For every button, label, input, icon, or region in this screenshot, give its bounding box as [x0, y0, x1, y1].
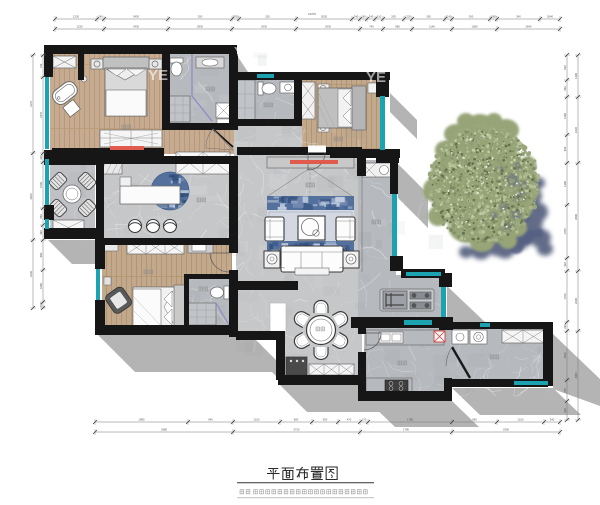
svg-text:195: 195 [426, 15, 431, 19]
svg-text:2960: 2960 [574, 372, 578, 378]
svg-text:1080: 1080 [472, 25, 478, 29]
svg-text:1010: 1010 [254, 418, 260, 422]
svg-text:740: 740 [39, 63, 43, 68]
svg-text:240: 240 [516, 15, 521, 19]
svg-text:560: 560 [39, 214, 43, 219]
svg-text:2820: 2820 [29, 193, 33, 199]
svg-text:YE: YE [366, 69, 386, 86]
svg-text:490: 490 [39, 230, 43, 235]
svg-text:1280: 1280 [563, 113, 567, 119]
svg-text:1140: 1140 [446, 15, 452, 19]
svg-text:3590: 3590 [574, 214, 578, 220]
svg-text:1230: 1230 [77, 25, 83, 29]
svg-text:1390: 1390 [563, 181, 567, 187]
svg-text:200: 200 [39, 302, 43, 307]
svg-text:240: 240 [369, 15, 374, 19]
svg-text:2030: 2030 [321, 15, 327, 19]
svg-text:1220: 1220 [405, 15, 411, 19]
svg-text:3430: 3430 [133, 25, 139, 29]
svg-text:2640: 2640 [526, 25, 532, 29]
svg-text:1080: 1080 [491, 15, 497, 19]
svg-text:1780: 1780 [407, 418, 413, 422]
svg-text:2300: 2300 [503, 428, 509, 432]
svg-text:2000: 2000 [574, 298, 578, 304]
svg-text:1700: 1700 [563, 293, 567, 299]
svg-text:2030: 2030 [261, 25, 267, 29]
svg-text:2830: 2830 [233, 15, 239, 19]
svg-text:960: 960 [472, 418, 477, 422]
svg-text:3170: 3170 [29, 101, 33, 107]
svg-text:290: 290 [563, 324, 567, 329]
svg-text:2470: 2470 [39, 112, 43, 118]
svg-text:830: 830 [563, 65, 567, 70]
svg-text:740: 740 [369, 25, 374, 29]
svg-text:1140: 1140 [429, 25, 435, 29]
svg-text:200: 200 [198, 15, 203, 19]
svg-text:2030: 2030 [325, 25, 331, 29]
svg-text:680: 680 [294, 418, 299, 422]
svg-text:560: 560 [563, 86, 567, 91]
svg-text:21370: 21370 [308, 12, 316, 16]
svg-text:205: 205 [391, 15, 396, 19]
svg-text:940: 940 [563, 146, 567, 151]
svg-text:1780: 1780 [403, 428, 409, 432]
svg-text:2230: 2230 [29, 271, 33, 277]
svg-text:1390: 1390 [574, 73, 578, 79]
svg-text:980: 980 [395, 25, 400, 29]
svg-text:240: 240 [98, 15, 103, 19]
svg-text:630: 630 [563, 408, 567, 413]
svg-text:1980: 1980 [139, 418, 145, 422]
svg-text:YE: YE [148, 67, 168, 84]
svg-text:170: 170 [362, 418, 367, 422]
svg-text:610: 610 [377, 15, 382, 19]
svg-text:980: 980 [39, 252, 43, 257]
svg-text:240: 240 [354, 15, 359, 19]
svg-text:1010: 1010 [518, 418, 524, 422]
svg-text:470: 470 [347, 418, 352, 422]
svg-text:205: 205 [265, 15, 270, 19]
svg-text:1630: 1630 [563, 352, 567, 358]
svg-text:YE: YE [234, 44, 252, 59]
svg-text:340: 340 [550, 418, 555, 422]
svg-text:550: 550 [323, 418, 328, 422]
svg-text:160: 160 [361, 15, 366, 19]
svg-text:1060: 1060 [39, 283, 43, 289]
svg-text:1500: 1500 [39, 182, 43, 188]
svg-text:700: 700 [563, 388, 567, 393]
svg-text:2720: 2720 [294, 428, 300, 432]
svg-text:2980: 2980 [161, 428, 167, 432]
svg-text:1760: 1760 [563, 228, 567, 234]
svg-text:940: 940 [208, 418, 213, 422]
svg-text:200: 200 [469, 15, 474, 19]
svg-text:1230: 1230 [73, 15, 79, 19]
svg-text:430: 430 [563, 262, 567, 267]
svg-text:3430: 3430 [133, 15, 139, 19]
svg-text:2830: 2830 [197, 25, 203, 29]
svg-text:2220: 2220 [574, 127, 578, 133]
svg-text:2640: 2640 [547, 15, 553, 19]
svg-text:300: 300 [39, 155, 43, 160]
